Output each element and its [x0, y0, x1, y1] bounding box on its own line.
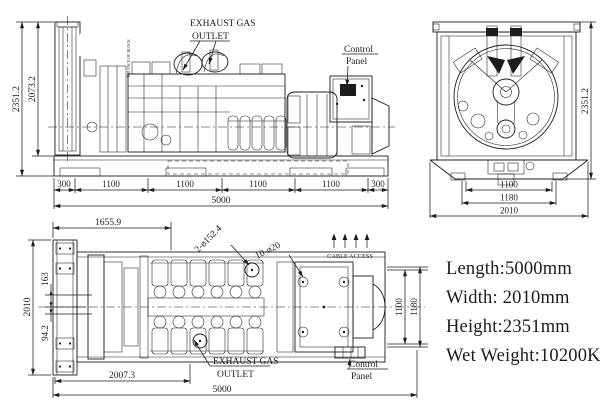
exhaust-callout-side: EXHAUST GAS OUTLET	[183, 19, 256, 70]
side-elevation-view: TOP FACE OF BLOCK EXHAUST GAS OUTLET Con…	[48, 16, 395, 176]
control-panel-display	[340, 84, 356, 96]
dim-plan-right-1100: 1100	[394, 298, 404, 316]
dim-end-height: 2351.2	[581, 88, 591, 114]
spec-length: Length:5000mm	[446, 259, 572, 279]
control-label-line2: Panel	[346, 57, 367, 67]
plan-control-label2: Panel	[351, 372, 372, 382]
alternator-side	[287, 92, 389, 158]
dim-height-to-skid: 2073.2	[28, 76, 38, 102]
fan-drive-side	[84, 60, 126, 152]
dim-seg-4: 1100	[249, 179, 267, 189]
plan-left-rail	[53, 240, 77, 375]
dim-seg-5: 1100	[322, 179, 340, 189]
holes-callouts: 2-ø152.4 10-ø20	[193, 224, 303, 277]
dim-plan-2007: 2007.3	[109, 371, 135, 381]
dim-end-2010: 2010	[500, 206, 519, 216]
control-callout-plan: Control Panel	[347, 359, 388, 382]
dim-seg-6: 300	[371, 179, 385, 189]
holes-label-2: 10-ø20	[254, 240, 283, 261]
cable-access-arrows: CABLE ACCESS	[327, 234, 373, 261]
technical-drawing-canvas: TOP FACE OF BLOCK EXHAUST GAS OUTLET Con…	[0, 0, 600, 404]
dim-seg-2: 1100	[102, 179, 120, 189]
end-view	[430, 22, 588, 185]
dim-plan-top: 1655.9	[95, 218, 121, 228]
base-skid-side	[54, 156, 388, 176]
plan-exhaust-label1: EXHAUST GAS	[213, 357, 279, 367]
exhaust-pipe-side	[80, 30, 124, 56]
plan-exhaust-label2: OUTLET	[217, 370, 254, 380]
cable-access-label: CABLE ACCESS	[327, 253, 373, 260]
end-view-dimensions: 2351.2 1100 1180 2010	[430, 22, 596, 218]
control-label-line1: Control	[344, 45, 373, 55]
dim-end-1180: 1180	[500, 193, 518, 203]
dim-seg-3: 1100	[176, 179, 194, 189]
dim-side-total: 5000	[212, 196, 231, 206]
dim-end-1100: 1100	[500, 180, 518, 190]
engine-side	[128, 50, 286, 152]
block-note-text: TOP FACE OF BLOCK	[126, 39, 131, 78]
dim-plan-right-1180: 1180	[409, 298, 419, 316]
radiator-side	[55, 16, 80, 161]
engine-front	[453, 48, 558, 140]
spec-block: Length:5000mm Width: 2010mm Height:2351m…	[446, 259, 600, 366]
exhaust-callout-plan: EXHAUST GAS OUTLET	[194, 340, 279, 380]
exhaust-label-line2: OUTLET	[192, 32, 229, 42]
dim-plan-width: 2010	[23, 297, 33, 316]
holes-label-1: 2-ø152.4	[193, 224, 224, 255]
dim-plan-163: 163	[40, 272, 50, 286]
control-panel-side	[330, 76, 372, 122]
control-callout-side: Control Panel	[342, 45, 378, 86]
dim-plan-5000: 5000	[213, 385, 232, 395]
side-view-dimensions: 2351.2 2073.2 300 1100 1100 1100 1100 30…	[12, 22, 388, 209]
spec-height: Height:2351mm	[446, 317, 570, 337]
plan-view: CABLE ACCESS 2-ø152.4 10-ø20 EXHAUST GAS…	[38, 224, 425, 382]
dim-plan-94: 94.2	[40, 325, 50, 341]
dim-seg-1: 300	[57, 179, 71, 189]
spec-width: Width: 2010mm	[446, 288, 570, 308]
dim-overall-height: 2351.2	[12, 86, 22, 112]
plan-control-panel	[335, 347, 365, 358]
spec-weight: Wet Weight:10200Kg	[446, 346, 600, 366]
drawing-sheet: TOP FACE OF BLOCK EXHAUST GAS OUTLET Con…	[0, 0, 600, 404]
plan-control-label1: Control	[349, 360, 378, 370]
exhaust-label-line1: EXHAUST GAS	[190, 19, 256, 29]
